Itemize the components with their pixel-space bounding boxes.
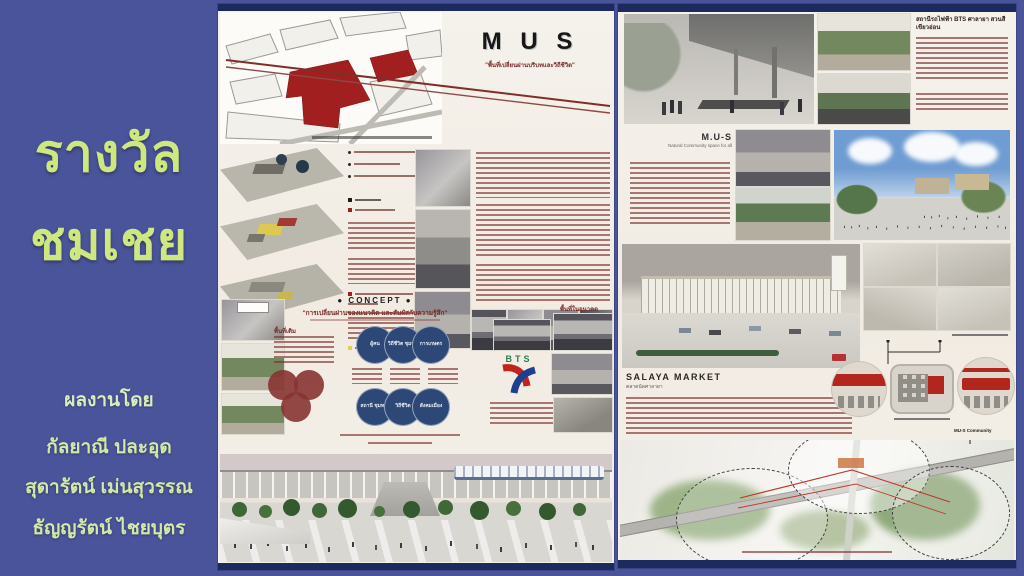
bts-logo: BTS	[496, 354, 542, 398]
project-title: M U S	[454, 28, 606, 56]
left-poster: M U S "พื้นที่เปลี่ยนผ่านบริบทและวิถีชีว…	[218, 4, 614, 570]
bullet-dot	[348, 163, 351, 166]
mus-text-block: M.U-S Natural Community space for all	[628, 132, 732, 148]
venn-list	[390, 368, 420, 384]
cars	[679, 328, 691, 333]
area-old-label: พื้นที่เดิม	[274, 326, 296, 336]
render-thumbnail	[864, 244, 936, 286]
render-park-building	[736, 188, 830, 240]
masterplan-aerial-render	[620, 440, 1014, 560]
poster-bottom-bar	[218, 563, 614, 570]
red-band	[832, 374, 886, 386]
concept-quote: "การเปลี่ยนผ่านของแนวคิด และสัมผัสกับควา…	[275, 308, 475, 318]
render-caption-line	[368, 442, 432, 446]
viaduct-ceiling	[689, 14, 814, 78]
photo-train-platform	[494, 320, 550, 350]
axon-block	[252, 164, 285, 174]
red-building	[928, 376, 944, 394]
concept-heading: ● CONCEPT ●	[280, 296, 470, 305]
venn-label: สังคมเมือง	[420, 404, 443, 410]
venn-diagram-row1: ผู้คน วิถีชีวิต ชุมชน การเกษตร	[356, 326, 456, 364]
diagram-connector-lines	[870, 340, 966, 366]
green-landscape-render	[818, 14, 910, 70]
photo-market-gate	[416, 210, 470, 288]
author-name: สุดารัตน์ เม่นสุวรรณ	[0, 472, 218, 502]
axon-block	[247, 234, 266, 242]
trees	[232, 502, 247, 517]
axon-slab	[220, 204, 344, 260]
hedge-row	[636, 350, 779, 356]
underpass-platform-render	[624, 14, 814, 124]
venn-label: ผู้คน	[370, 342, 380, 348]
venn-label: วิถีชีวิต	[395, 404, 410, 410]
axon-block	[248, 282, 285, 292]
people-crowd	[844, 226, 845, 228]
horizon-buildings	[955, 174, 989, 190]
award-title-line2: ชมเชย	[0, 216, 218, 268]
venn-diagram-row2: สถานี ชุมทาง วิถีชีวิต สังคมเมือง	[356, 388, 456, 426]
annotation-line	[354, 175, 416, 177]
axon-diagram-2	[220, 204, 344, 260]
mus-heading: M.U-S	[628, 132, 732, 142]
column	[734, 49, 738, 95]
venn-label: การเกษตร	[420, 342, 443, 348]
photo-market-crowd	[552, 354, 612, 394]
market-aerial-render	[622, 244, 860, 368]
annotation-line	[354, 163, 400, 165]
axon-diagram-1	[220, 148, 344, 202]
poster-top-bar	[618, 4, 1016, 12]
legend-label-line	[355, 209, 395, 211]
plan-blocks	[964, 396, 1008, 408]
render-thumbnail	[938, 288, 1010, 330]
render-caption-line	[340, 434, 460, 438]
venn-circle: สังคมเมือง	[412, 388, 450, 426]
poster-bottom-bar	[618, 560, 1016, 568]
legend-square-red	[348, 208, 352, 212]
venn-circle: การเกษตร	[412, 326, 450, 364]
foliage-gray	[624, 23, 689, 100]
mus-subheading: Natural Community space for all	[628, 143, 732, 148]
column	[772, 47, 777, 98]
market-text-block: SALAYA MARKET ตลาดนัดศาลายา	[626, 372, 852, 437]
diagram-caption	[894, 418, 950, 422]
masterplan-caption	[742, 551, 892, 555]
concept-subline	[310, 319, 440, 322]
people-crowd	[924, 216, 925, 218]
grid-caption	[952, 334, 1008, 338]
station-paragraph	[916, 37, 1008, 81]
axon-roof-fan	[296, 160, 309, 173]
area-future-label: พื้นที่ในอนาคต	[560, 304, 598, 314]
legend-label-line	[355, 293, 413, 295]
plaza-sky-render	[834, 130, 1010, 240]
station-text-block: สถานีรถไฟฟ้า BTS ศาลายา สวนสีเขียวอ่อน	[916, 16, 1010, 111]
tree-mass	[834, 183, 880, 216]
market-subheading: ตลาดนัดศาลายา	[626, 383, 852, 391]
legend-square-black	[348, 198, 352, 202]
render-thumbnail	[736, 130, 830, 186]
green-landscape-render	[818, 74, 910, 124]
venn-list	[428, 368, 458, 384]
market-paragraph	[626, 397, 852, 437]
bullet-dot	[348, 175, 351, 178]
people-silhouettes	[670, 100, 674, 113]
bts-caption	[490, 402, 556, 426]
plan-diagram	[892, 366, 952, 412]
cloud	[954, 142, 998, 166]
market-building	[641, 276, 841, 316]
photo-train-interior	[554, 314, 612, 350]
station-paragraph	[916, 93, 1008, 111]
project-subtitle: "พื้นที่เปลี่ยนผ่านบริบทและวิถีชีวิต"	[454, 60, 606, 70]
plan-blocks	[898, 374, 928, 402]
station-heading: สถานีรถไฟฟ้า BTS ศาลายา สวนสีเขียวอ่อน	[916, 16, 1010, 32]
render-thumbnail	[938, 244, 1010, 286]
community-label: MU-S Community	[954, 428, 992, 433]
legend-label-line	[355, 199, 381, 201]
plan-blocks	[838, 396, 880, 408]
bullet-dot	[348, 151, 351, 154]
slide-background: รางวัล ชมเชย ผลงานโดย กัลยาณี ปละอุด สุด…	[0, 0, 1024, 576]
award-title-line1: รางวัล	[0, 128, 218, 180]
red-band	[962, 378, 1010, 390]
render-thumbnail	[864, 288, 936, 330]
author-name: กัลยาณี ปละอุด	[0, 432, 218, 462]
plan-callout-circle	[958, 358, 1014, 414]
axon-highlight-red	[277, 218, 298, 226]
mus-paragraph	[630, 162, 730, 226]
concept-side-paragraph	[274, 336, 334, 366]
parking-lot	[622, 313, 860, 368]
right-poster: สถานีรถไฟฟ้า BTS ศาลายา สวนสีเขียวอ่อน M…	[618, 4, 1016, 568]
axon-roof-fan	[276, 154, 287, 165]
body-paragraph	[476, 264, 610, 304]
body-paragraph	[476, 204, 610, 258]
connection-lines-red	[620, 440, 1014, 560]
credit-label: ผลงานโดย	[0, 385, 218, 415]
photo-street-scene	[416, 150, 470, 206]
legend-square-yellow	[348, 346, 352, 350]
train	[454, 466, 604, 480]
station-perspective-render	[220, 454, 612, 562]
poster-top-bar	[218, 4, 614, 11]
author-name: ธัญญรัตน์ ไชยบุตร	[0, 513, 218, 543]
body-paragraph	[476, 152, 610, 198]
photo-aerial	[554, 398, 612, 432]
market-heading: SALAYA MARKET	[626, 372, 852, 382]
red-venn-diagram	[268, 370, 330, 426]
project-title-block: M U S "พื้นที่เปลี่ยนผ่านบริบทและวิถีชีว…	[454, 28, 606, 70]
red-band	[958, 368, 1014, 372]
cloud	[904, 132, 960, 162]
track-strip	[697, 100, 790, 109]
market-tower	[832, 256, 846, 290]
cloud	[848, 138, 892, 164]
venn-circle-red	[281, 392, 311, 422]
sidebar: รางวัล ชมเชย ผลงานโดย กัลยาณี ปละอุด สุด…	[0, 0, 218, 576]
plan-callout-circle	[832, 362, 886, 416]
red-car	[832, 354, 846, 361]
bts-logo-text: BTS	[496, 354, 542, 364]
bts-logo-mark	[499, 364, 539, 394]
venn-list	[352, 368, 382, 384]
photo-label-box	[238, 303, 268, 312]
